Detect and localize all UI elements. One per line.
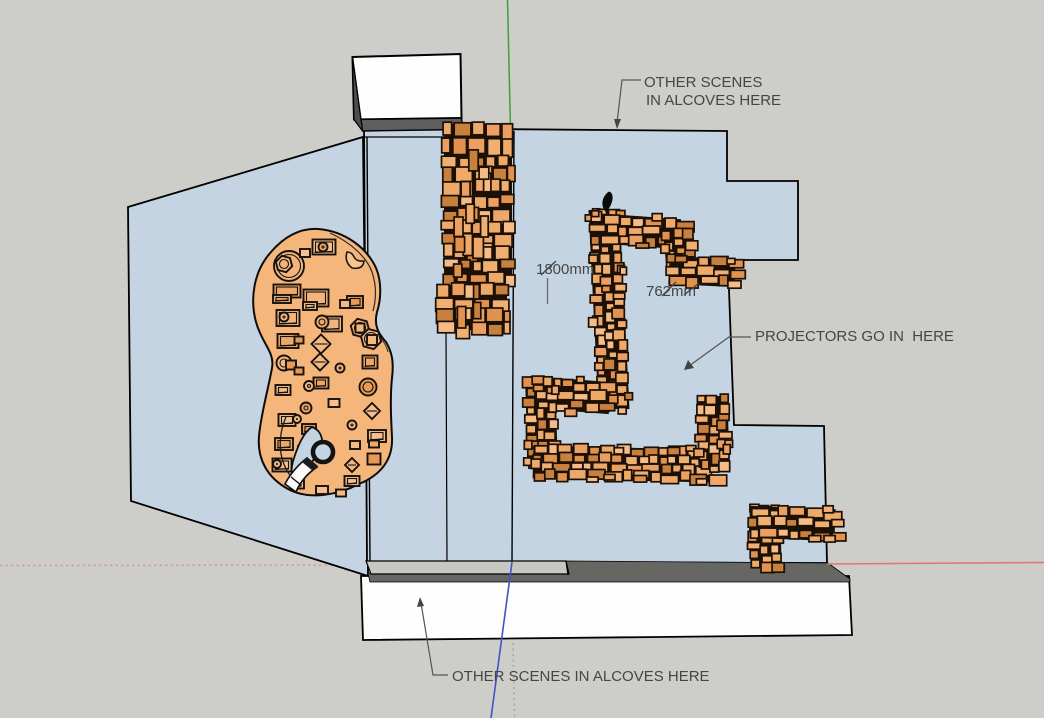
svg-text:1800mm: 1800mm: [536, 261, 594, 278]
svg-text:IN ALCOVES HERE: IN ALCOVES HERE: [646, 92, 781, 109]
svg-text:OTHER SCENES: OTHER SCENES: [644, 74, 762, 91]
svg-text:PROJECTORS GO IN HERE: PROJECTORS GO IN HERE: [755, 328, 954, 345]
svg-text:OTHER SCENES IN ALCOVES HERE: OTHER SCENES IN ALCOVES HERE: [452, 668, 710, 685]
